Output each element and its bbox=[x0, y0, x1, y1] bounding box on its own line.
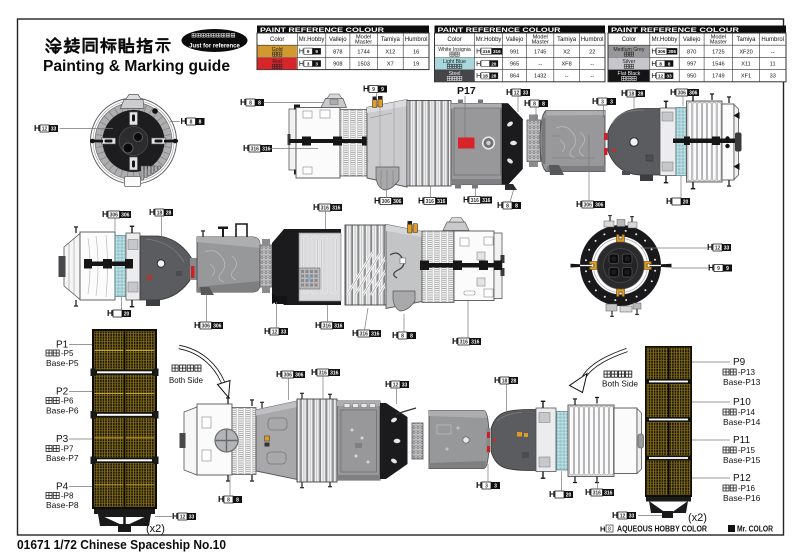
svg-text:H: H bbox=[476, 61, 481, 68]
svg-text:Mr.Hobby: Mr.Hobby bbox=[652, 37, 678, 43]
svg-text:33: 33 bbox=[629, 513, 635, 519]
svg-text:H: H bbox=[494, 375, 500, 385]
svg-text:H: H bbox=[299, 49, 304, 56]
svg-text:997: 997 bbox=[687, 62, 696, 68]
svg-text:8: 8 bbox=[199, 119, 202, 125]
svg-text:Color: Color bbox=[622, 37, 636, 43]
svg-text:-P5: -P5 bbox=[61, 349, 74, 358]
svg-text:Color: Color bbox=[270, 37, 284, 43]
svg-text:Master: Master bbox=[355, 40, 372, 46]
svg-text:-P6: -P6 bbox=[61, 397, 74, 406]
svg-text:H: H bbox=[194, 320, 200, 330]
svg-text:H: H bbox=[243, 143, 249, 153]
svg-text:H: H bbox=[666, 196, 672, 206]
svg-text:12: 12 bbox=[393, 382, 399, 388]
svg-text:20: 20 bbox=[491, 61, 497, 66]
svg-text:1503: 1503 bbox=[357, 62, 369, 68]
svg-text:H: H bbox=[385, 379, 391, 389]
svg-text:Base-P14: Base-P14 bbox=[723, 417, 761, 427]
svg-text:16: 16 bbox=[413, 49, 419, 55]
svg-text:H: H bbox=[707, 242, 713, 252]
svg-text:9: 9 bbox=[315, 49, 318, 54]
svg-text:Painting & Marking guide: Painting & Marking guide bbox=[43, 58, 230, 75]
svg-text:H: H bbox=[392, 330, 398, 340]
svg-text:306: 306 bbox=[584, 202, 593, 208]
svg-text:H: H bbox=[592, 96, 598, 106]
svg-text:Humbrol: Humbrol bbox=[405, 37, 428, 43]
svg-text:316: 316 bbox=[319, 370, 328, 376]
svg-text:-P16: -P16 bbox=[738, 484, 755, 493]
svg-text:33: 33 bbox=[281, 329, 287, 335]
svg-text:Vallejo: Vallejo bbox=[506, 37, 524, 43]
svg-text:H: H bbox=[352, 328, 358, 338]
svg-text:H: H bbox=[600, 525, 605, 534]
svg-text:Tamiya: Tamiya bbox=[736, 37, 756, 43]
svg-text:306: 306 bbox=[658, 49, 666, 54]
svg-text:22: 22 bbox=[589, 49, 595, 55]
svg-text:306: 306 bbox=[121, 212, 130, 218]
svg-text:White Insignia: White Insignia bbox=[438, 47, 471, 53]
svg-text:XF8: XF8 bbox=[561, 62, 571, 68]
svg-text:9: 9 bbox=[717, 266, 720, 272]
svg-text:316: 316 bbox=[593, 490, 602, 496]
svg-text:Base-P15: Base-P15 bbox=[723, 455, 761, 465]
svg-text:1432: 1432 bbox=[534, 74, 546, 80]
svg-text:9: 9 bbox=[381, 87, 384, 93]
svg-text:H: H bbox=[313, 202, 319, 212]
svg-text:AQUEOUS HOBBY COLOR: AQUEOUS HOBBY COLOR bbox=[617, 525, 707, 534]
svg-text:--: -- bbox=[538, 62, 542, 68]
svg-text:H: H bbox=[311, 367, 317, 377]
svg-text:11: 11 bbox=[770, 62, 776, 68]
svg-text:H: H bbox=[102, 209, 108, 219]
svg-text:316: 316 bbox=[493, 49, 501, 54]
svg-text:12: 12 bbox=[514, 90, 520, 96]
svg-text:28: 28 bbox=[638, 91, 644, 97]
svg-text:H: H bbox=[670, 87, 676, 97]
svg-text:3: 3 bbox=[485, 483, 488, 489]
svg-text:20: 20 bbox=[683, 199, 689, 205]
svg-text:P3: P3 bbox=[56, 434, 69, 445]
svg-text:306: 306 bbox=[382, 199, 391, 205]
svg-text:8: 8 bbox=[668, 61, 671, 66]
svg-text:306: 306 bbox=[668, 49, 676, 54]
svg-text:1725: 1725 bbox=[712, 49, 724, 55]
svg-text:X12: X12 bbox=[385, 49, 395, 55]
svg-text:H: H bbox=[612, 510, 618, 520]
svg-text:1546: 1546 bbox=[712, 62, 724, 68]
svg-text:8: 8 bbox=[190, 119, 193, 125]
svg-text:306: 306 bbox=[213, 323, 222, 329]
svg-text:--: -- bbox=[771, 49, 775, 55]
svg-text:Base-P6: Base-P6 bbox=[46, 406, 79, 416]
svg-text:18: 18 bbox=[629, 91, 635, 97]
svg-text:18: 18 bbox=[157, 210, 163, 216]
svg-text:H: H bbox=[34, 123, 40, 133]
svg-text:316: 316 bbox=[371, 331, 380, 337]
svg-text:-P15: -P15 bbox=[738, 446, 755, 455]
svg-text:8: 8 bbox=[542, 101, 545, 107]
svg-text:3: 3 bbox=[307, 61, 310, 66]
svg-text:306: 306 bbox=[202, 323, 211, 329]
svg-text:Both Side: Both Side bbox=[169, 375, 203, 385]
svg-text:-P14: -P14 bbox=[738, 408, 755, 417]
svg-text:8: 8 bbox=[533, 101, 536, 107]
svg-text:33: 33 bbox=[770, 74, 776, 80]
svg-text:Base-P5: Base-P5 bbox=[46, 358, 79, 368]
svg-text:8: 8 bbox=[608, 527, 611, 533]
svg-text:870: 870 bbox=[687, 49, 696, 55]
svg-text:(x2): (x2) bbox=[146, 523, 165, 535]
svg-text:H: H bbox=[276, 369, 282, 379]
svg-text:H: H bbox=[651, 49, 656, 56]
svg-text:H: H bbox=[418, 195, 424, 205]
svg-text:H: H bbox=[374, 195, 380, 205]
svg-text:33: 33 bbox=[724, 245, 730, 251]
svg-text:H: H bbox=[506, 87, 512, 97]
svg-text:H: H bbox=[576, 199, 582, 209]
svg-text:H: H bbox=[452, 336, 458, 346]
svg-text:864: 864 bbox=[510, 74, 519, 80]
svg-text:H: H bbox=[708, 262, 714, 272]
svg-text:H: H bbox=[264, 326, 270, 336]
svg-text:3: 3 bbox=[601, 99, 604, 105]
svg-text:H: H bbox=[497, 200, 503, 210]
svg-text:P17: P17 bbox=[457, 85, 476, 97]
svg-text:33: 33 bbox=[189, 514, 195, 520]
svg-text:H: H bbox=[549, 489, 555, 499]
svg-text:01671 1/72 Chinese Spaceship: 01671 1/72 Chinese Spaceship No.10 bbox=[17, 538, 226, 552]
svg-text:H: H bbox=[299, 61, 304, 68]
svg-text:316: 316 bbox=[482, 49, 490, 54]
svg-text:Color: Color bbox=[447, 37, 461, 43]
svg-text:H: H bbox=[107, 308, 113, 318]
svg-text:3: 3 bbox=[494, 483, 497, 489]
svg-text:H: H bbox=[240, 97, 246, 107]
svg-text:Vallejo: Vallejo bbox=[329, 37, 347, 43]
svg-text:H: H bbox=[621, 88, 627, 98]
svg-text:Just for reference: Just for reference bbox=[189, 44, 240, 50]
svg-text:33: 33 bbox=[402, 382, 408, 388]
svg-text:12: 12 bbox=[180, 514, 186, 520]
svg-text:12: 12 bbox=[42, 126, 48, 132]
svg-text:316: 316 bbox=[460, 339, 469, 345]
svg-text:12: 12 bbox=[272, 329, 278, 335]
svg-text:Tamiya: Tamiya bbox=[557, 37, 577, 43]
svg-text:H: H bbox=[363, 83, 369, 93]
svg-text:316: 316 bbox=[332, 205, 341, 211]
svg-text:H: H bbox=[476, 73, 481, 80]
svg-text:X11: X11 bbox=[741, 62, 751, 68]
svg-text:Mr. COLOR: Mr. COLOR bbox=[737, 525, 773, 534]
svg-text:H: H bbox=[315, 320, 321, 330]
svg-text:20: 20 bbox=[566, 492, 572, 498]
svg-text:Tamiya: Tamiya bbox=[381, 37, 401, 43]
svg-text:9: 9 bbox=[726, 266, 729, 272]
svg-text:--: -- bbox=[565, 74, 569, 80]
svg-text:316: 316 bbox=[437, 199, 446, 205]
svg-text:8: 8 bbox=[227, 497, 230, 503]
svg-text:Vallejo: Vallejo bbox=[683, 37, 701, 43]
svg-text:316: 316 bbox=[321, 205, 330, 211]
svg-text:Humbrol: Humbrol bbox=[581, 37, 604, 43]
svg-text:306: 306 bbox=[110, 212, 119, 218]
svg-text:XF1: XF1 bbox=[741, 74, 751, 80]
svg-text:316: 316 bbox=[262, 146, 271, 152]
svg-text:P10: P10 bbox=[733, 397, 751, 408]
svg-text:9: 9 bbox=[372, 87, 375, 93]
svg-text:1745: 1745 bbox=[534, 49, 546, 55]
svg-text:12: 12 bbox=[658, 74, 664, 79]
svg-text:8: 8 bbox=[401, 333, 404, 339]
svg-text:1749: 1749 bbox=[712, 74, 724, 80]
svg-text:306: 306 bbox=[678, 90, 687, 96]
svg-text:316: 316 bbox=[334, 323, 343, 329]
svg-text:-P13: -P13 bbox=[738, 368, 755, 377]
svg-text:8: 8 bbox=[515, 203, 518, 209]
svg-text:8: 8 bbox=[236, 497, 239, 503]
svg-text:H: H bbox=[172, 511, 178, 521]
svg-text:33: 33 bbox=[667, 74, 673, 79]
svg-text:28: 28 bbox=[491, 74, 497, 79]
svg-text:H: H bbox=[476, 49, 481, 56]
svg-text:316: 316 bbox=[426, 199, 435, 205]
svg-text:8: 8 bbox=[506, 203, 509, 209]
svg-text:316: 316 bbox=[604, 490, 613, 496]
svg-text:12: 12 bbox=[620, 513, 626, 519]
svg-text:1744: 1744 bbox=[357, 49, 369, 55]
svg-text:Base-P8: Base-P8 bbox=[46, 500, 79, 510]
svg-text:Master: Master bbox=[532, 40, 549, 46]
svg-text:H: H bbox=[463, 194, 469, 204]
svg-text:H: H bbox=[651, 73, 656, 80]
svg-text:P12: P12 bbox=[733, 473, 751, 484]
svg-text:8: 8 bbox=[659, 61, 662, 66]
svg-text:878: 878 bbox=[333, 49, 342, 55]
svg-text:991: 991 bbox=[510, 49, 519, 55]
svg-text:X7: X7 bbox=[387, 62, 394, 68]
svg-text:3: 3 bbox=[315, 61, 318, 66]
svg-text:316: 316 bbox=[471, 198, 480, 204]
svg-text:--: -- bbox=[590, 74, 594, 80]
svg-text:H: H bbox=[524, 98, 530, 108]
svg-text:316: 316 bbox=[482, 198, 491, 204]
svg-text:H: H bbox=[149, 207, 155, 217]
svg-text:306: 306 bbox=[595, 202, 604, 208]
svg-text:316: 316 bbox=[251, 146, 260, 152]
svg-text:8: 8 bbox=[249, 100, 252, 106]
svg-text:306: 306 bbox=[295, 372, 304, 378]
svg-text:Humbrol: Humbrol bbox=[761, 37, 784, 43]
svg-text:--: -- bbox=[590, 62, 594, 68]
svg-text:28: 28 bbox=[166, 210, 172, 216]
svg-text:316: 316 bbox=[471, 339, 480, 345]
svg-text:28: 28 bbox=[511, 378, 517, 384]
svg-text:9: 9 bbox=[307, 49, 310, 54]
svg-text:XF20: XF20 bbox=[739, 49, 752, 55]
svg-text:8: 8 bbox=[410, 333, 413, 339]
svg-text:P9: P9 bbox=[733, 357, 746, 368]
svg-text:Mr.Hobby: Mr.Hobby bbox=[476, 37, 502, 43]
svg-text:306: 306 bbox=[284, 372, 293, 378]
svg-text:Both Side: Both Side bbox=[602, 379, 638, 389]
svg-text:316: 316 bbox=[360, 331, 369, 337]
svg-text:3: 3 bbox=[610, 99, 613, 105]
svg-text:X2: X2 bbox=[563, 49, 570, 55]
svg-text:18: 18 bbox=[483, 74, 489, 79]
svg-text:965: 965 bbox=[510, 62, 519, 68]
svg-text:306: 306 bbox=[393, 199, 402, 205]
svg-text:306: 306 bbox=[689, 90, 698, 96]
svg-text:908: 908 bbox=[333, 62, 342, 68]
svg-text:20: 20 bbox=[124, 311, 130, 317]
svg-text:H: H bbox=[585, 487, 591, 497]
svg-text:H: H bbox=[218, 494, 224, 504]
svg-text:950: 950 bbox=[687, 74, 696, 80]
svg-text:Medium Grey: Medium Grey bbox=[613, 47, 645, 53]
svg-text:33: 33 bbox=[51, 126, 57, 132]
svg-text:Master: Master bbox=[710, 40, 727, 46]
svg-text:H: H bbox=[651, 61, 656, 68]
svg-text:12: 12 bbox=[715, 245, 721, 251]
svg-text:316: 316 bbox=[323, 323, 332, 329]
svg-text:H: H bbox=[476, 480, 482, 490]
svg-text:316: 316 bbox=[330, 370, 339, 376]
svg-text:Mr.Hobby: Mr.Hobby bbox=[299, 37, 325, 43]
svg-text:(x2): (x2) bbox=[688, 512, 707, 524]
svg-text:19: 19 bbox=[413, 62, 419, 68]
svg-text:Base-P7: Base-P7 bbox=[46, 453, 79, 463]
svg-text:P11: P11 bbox=[733, 435, 750, 446]
svg-text:8: 8 bbox=[258, 100, 261, 106]
svg-text:18: 18 bbox=[502, 378, 508, 384]
svg-text:Base-P16: Base-P16 bbox=[723, 493, 761, 503]
svg-text:Base-P13: Base-P13 bbox=[723, 377, 761, 387]
svg-text:H: H bbox=[181, 116, 187, 126]
svg-text:33: 33 bbox=[523, 90, 529, 96]
